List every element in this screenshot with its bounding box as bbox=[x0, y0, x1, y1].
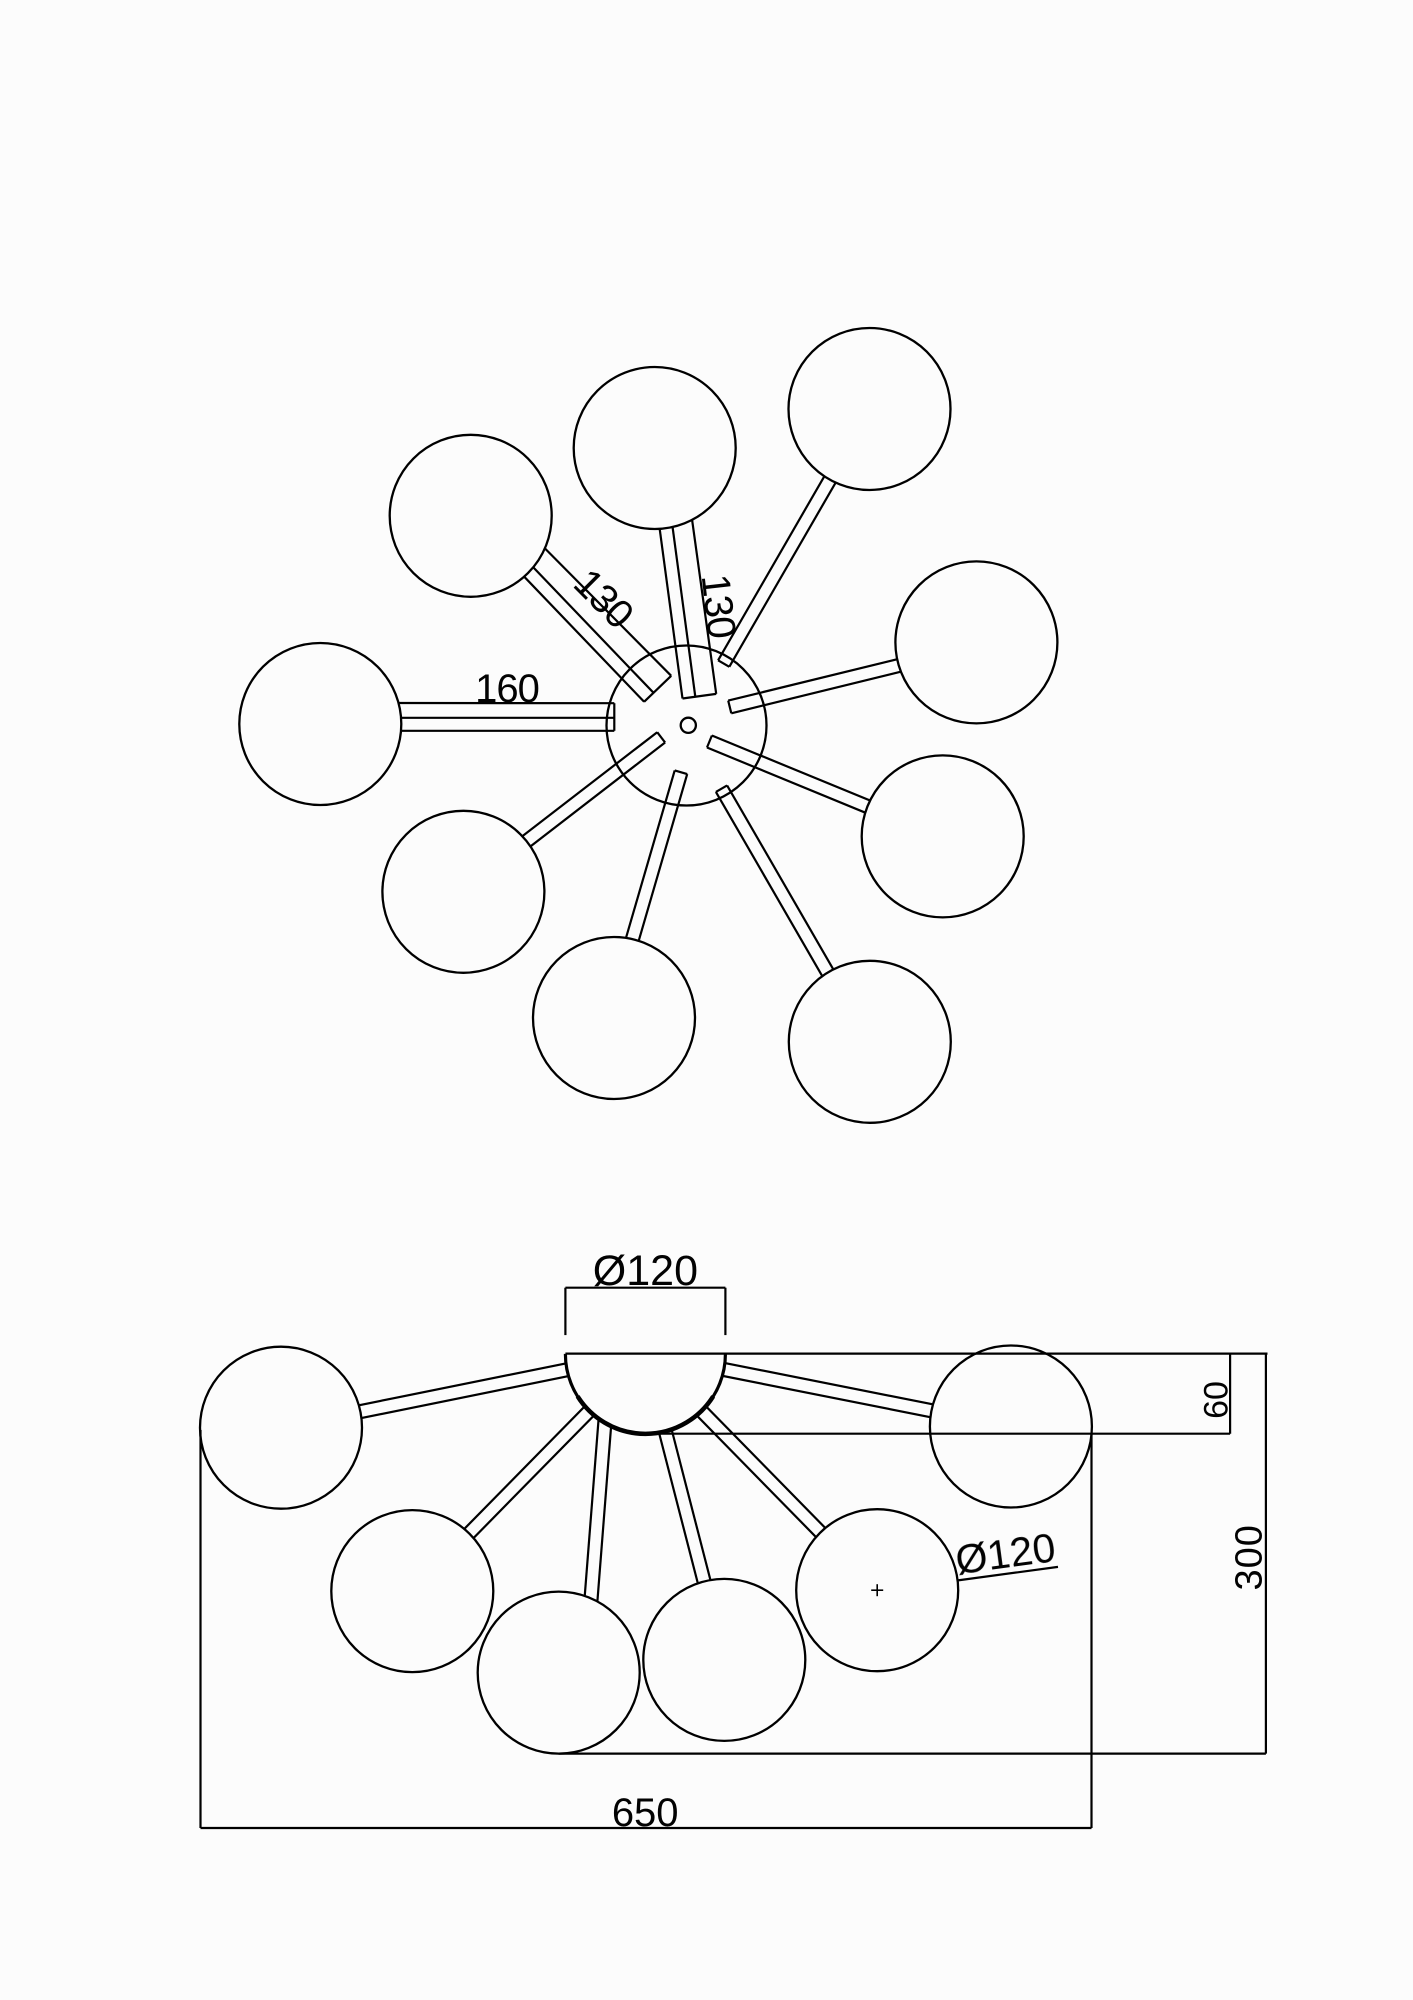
svg-text:160: 160 bbox=[475, 667, 539, 711]
svg-text:300: 300 bbox=[1229, 1524, 1271, 1590]
svg-text:650: 650 bbox=[612, 1791, 679, 1835]
svg-text:130: 130 bbox=[693, 572, 744, 640]
svg-text:Ø120: Ø120 bbox=[593, 1247, 698, 1295]
svg-text:60: 60 bbox=[1197, 1381, 1235, 1419]
